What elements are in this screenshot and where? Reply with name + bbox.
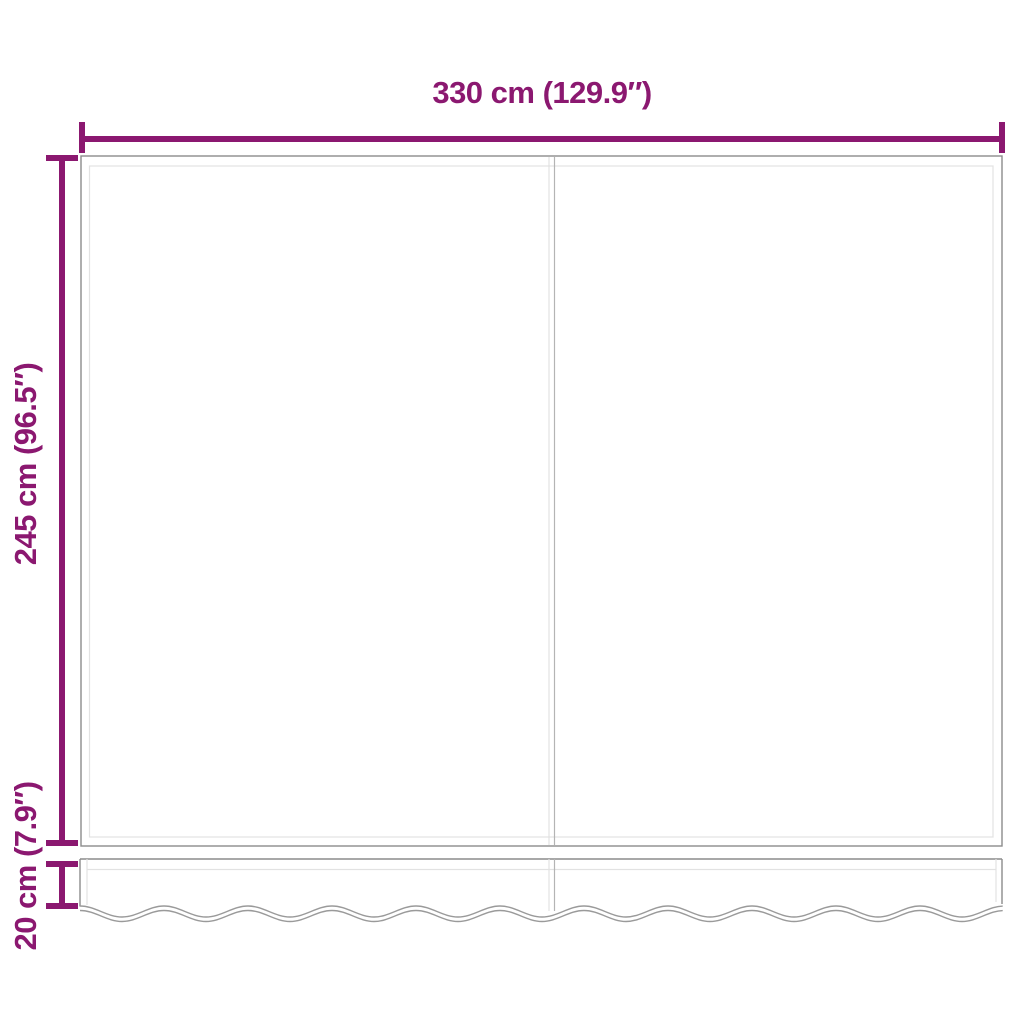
- awning-fabric-dimension-drawing: 330 cm (129.9″) 245 cm (96.5″) 20 cm (7.…: [0, 0, 1024, 1024]
- valance-height-dimension: 20 cm (7.9″): [8, 781, 78, 950]
- valance-wave-lower-line: [80, 911, 1004, 922]
- width-dimension: 330 cm (129.9″): [82, 75, 1002, 153]
- height-dimension: 245 cm (96.5″): [8, 158, 78, 843]
- valance-wave-upper-line: [80, 906, 1004, 917]
- height-dimension-label: 245 cm (96.5″): [8, 363, 43, 566]
- dimension-diagram-canvas: 330 cm (129.9″) 245 cm (96.5″) 20 cm (7.…: [0, 0, 1024, 1024]
- valance-height-dimension-label: 20 cm (7.9″): [8, 781, 43, 950]
- valance-strip: [80, 859, 1004, 922]
- main-fabric-outline: [81, 156, 1002, 846]
- valance-wavy-edge: [80, 906, 1004, 922]
- width-dimension-label: 330 cm (129.9″): [432, 75, 651, 110]
- main-fabric-inner-line: [90, 166, 994, 837]
- main-fabric-panel: [81, 156, 1002, 846]
